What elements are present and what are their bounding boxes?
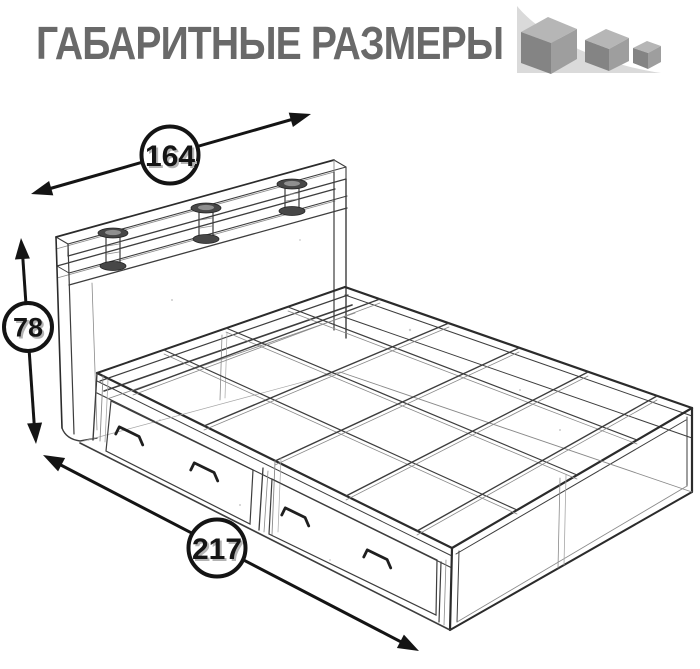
dimension-height: 78 78 xyxy=(4,238,52,444)
drawer-handle xyxy=(282,508,312,528)
width-arrowhead-left xyxy=(31,181,53,195)
spool xyxy=(98,228,128,271)
underbed-drawers xyxy=(106,401,446,625)
dimensions-sheet: ГАБАРИТНЫЕ РАЗМЕРЫ xyxy=(0,0,700,669)
bed-dimension-illustration: ГАБАРИТНЫЕ РАЗМЕРЫ xyxy=(0,0,700,669)
width-arrowhead-right xyxy=(289,113,311,127)
width-value: 164 xyxy=(145,140,195,173)
drawer-handle xyxy=(364,550,394,570)
drawer-front-1 xyxy=(106,401,253,524)
spool xyxy=(191,203,221,244)
length-arrowhead-right xyxy=(397,635,419,651)
height-arrowhead-bottom xyxy=(27,423,42,445)
length-value: 217 xyxy=(192,533,242,566)
dimension-length: 217 217 xyxy=(43,455,419,651)
bed-base xyxy=(80,287,692,630)
shrinking-cubes-icon xyxy=(517,6,661,74)
dimension-width: 164 164 xyxy=(31,113,311,196)
drawer-handle xyxy=(191,463,221,483)
height-arrowhead-top xyxy=(15,238,30,260)
height-value: 78 xyxy=(13,313,43,343)
drawer-divider xyxy=(259,468,263,530)
drawer-handle xyxy=(116,427,146,447)
length-arrowhead-left xyxy=(43,455,65,471)
page-title: ГАБАРИТНЫЕ РАЗМЕРЫ xyxy=(36,18,503,70)
